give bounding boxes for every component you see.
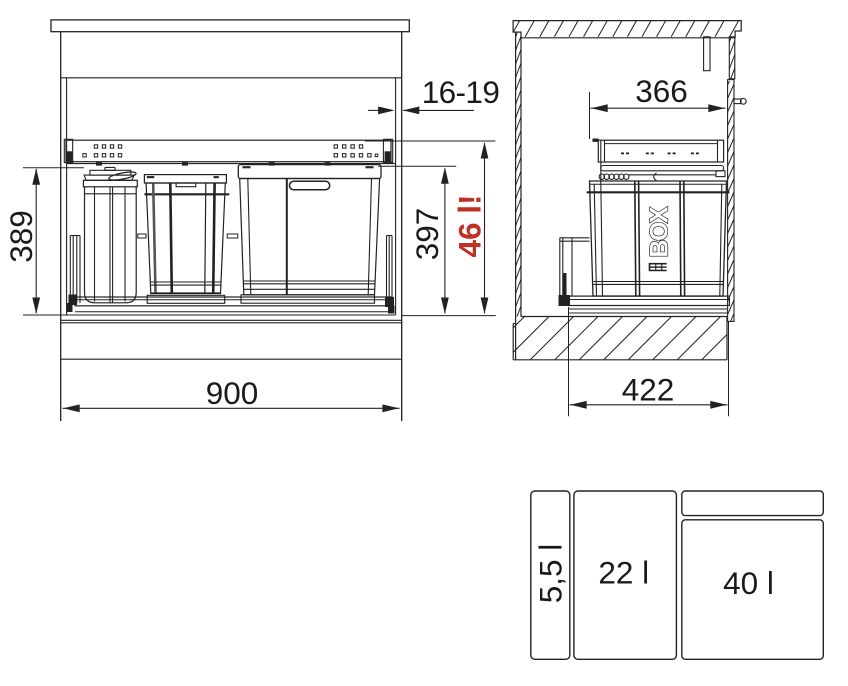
svg-text:40 l: 40 l: [723, 565, 774, 601]
svg-text:397: 397: [409, 208, 445, 261]
svg-text:BOX: BOX: [645, 206, 673, 257]
svg-text:900: 900: [206, 375, 259, 411]
svg-text:22 l: 22 l: [598, 555, 649, 591]
svg-text:366: 366: [635, 73, 688, 109]
svg-text:46 l!: 46 l!: [452, 194, 488, 257]
svg-text:16-19: 16-19: [422, 74, 500, 110]
svg-text:422: 422: [622, 371, 675, 407]
svg-text:5,5 l: 5,5 l: [533, 544, 569, 604]
svg-text:389: 389: [3, 210, 39, 263]
